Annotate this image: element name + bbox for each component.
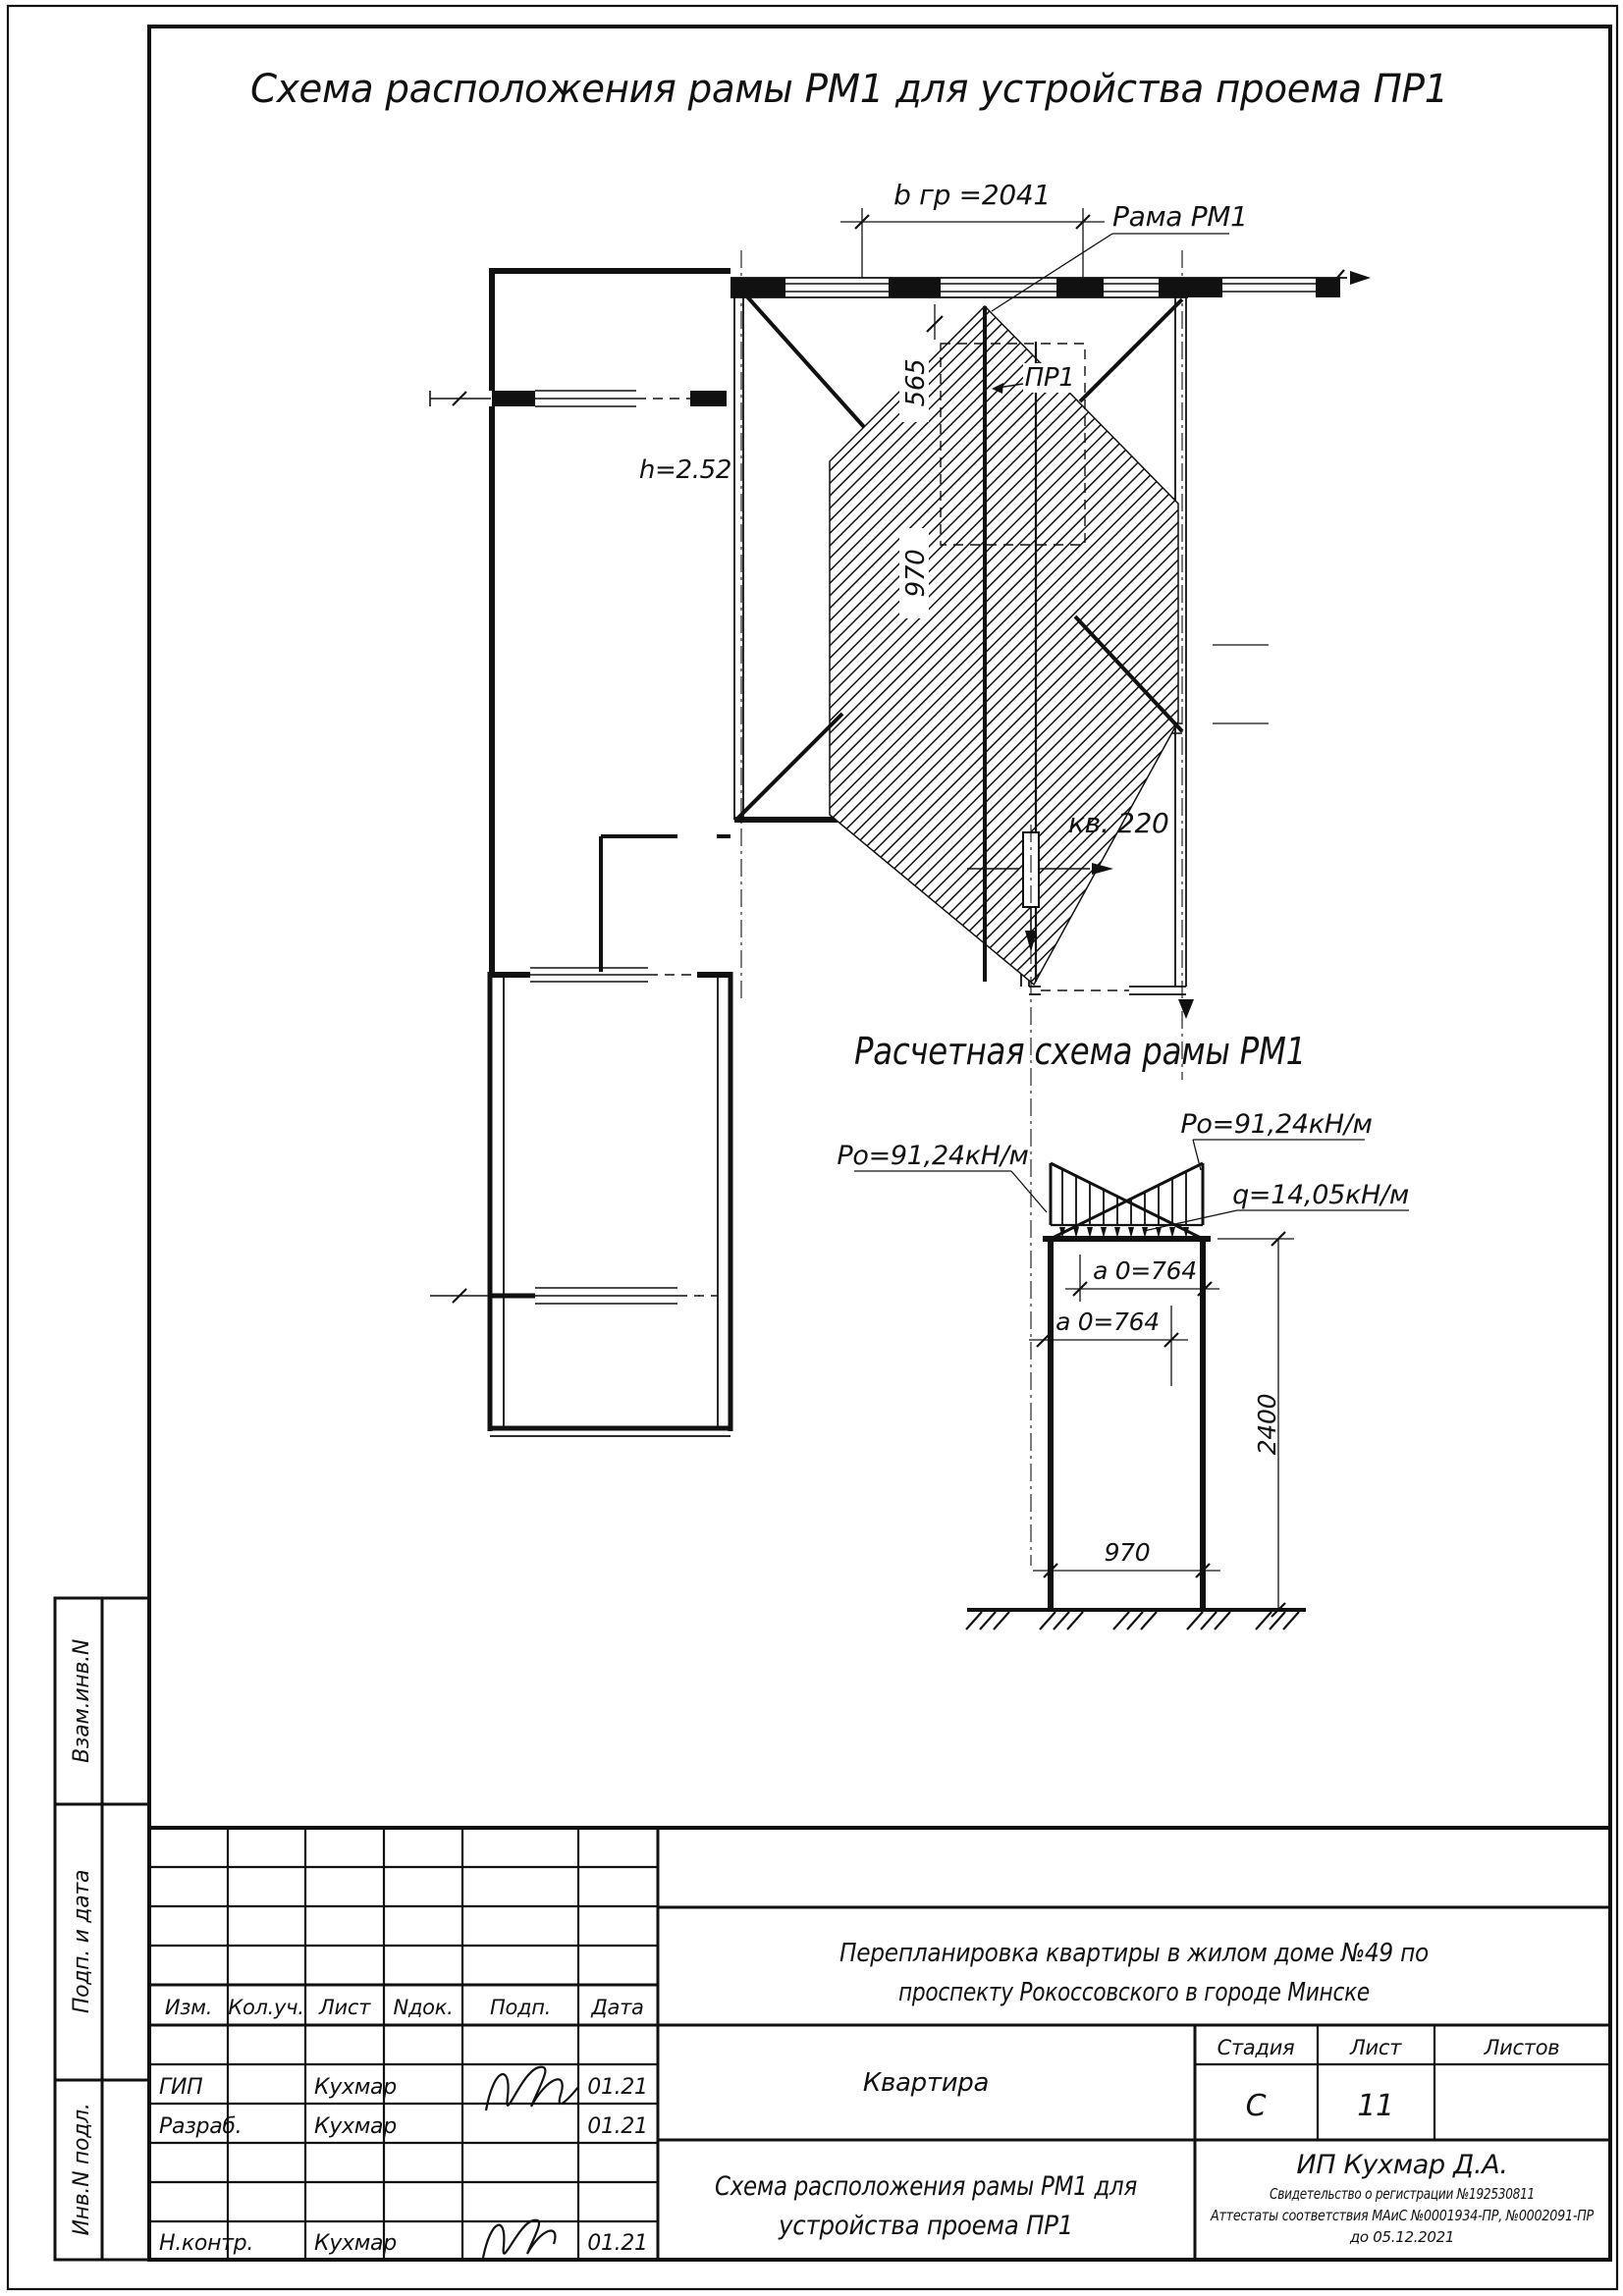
plan-left-block: h=2.52 — [430, 271, 731, 982]
floor-plan: Схема расположения рамы РМ1 для устройст… — [250, 67, 1448, 1566]
tb-role: Н.контр. — [159, 2231, 253, 2256]
load-labels: Ро=91,24кН/м Ро=91,24кН/м q=14,05кН/м — [837, 1109, 1409, 1231]
tb-staff-row-razrab: Разраб. Кухмар 01.21 — [159, 2114, 648, 2139]
calc-scheme: Расчетная схема рамы РМ1 — [837, 1030, 1409, 1629]
load-right-label: Ро=91,24кН/м — [1180, 1109, 1372, 1140]
load-q-label: q=14,05кН/м — [1232, 1180, 1409, 1210]
axis-arrow-kv-right — [1092, 863, 1113, 875]
opening-label: ПР1 — [1025, 363, 1075, 393]
title-block: Изм. Кол.уч. Лист Nдок. Подп. Дата ГИП К… — [149, 1828, 1610, 2260]
side-label-podp-data: Подп. и дата — [70, 1870, 94, 2013]
dim-2400: 2400 — [1253, 1394, 1281, 1455]
drawing-sheet-svg: Взам.инв.N Подп. и дата Инв.N подл. Схем… — [0, 0, 1623, 2296]
tb-date: 01.21 — [587, 2231, 647, 2256]
tb-object: Квартира — [863, 2068, 989, 2098]
hatched-opening-zone: ПР1 565 970 — [736, 285, 1182, 985]
tb-staff-row-nkontr: Н.контр. Кухмар 01.21 — [159, 2231, 648, 2256]
load-left-label: Ро=91,24кН/м — [837, 1141, 1028, 1171]
tb-name: Кухмар — [314, 2231, 397, 2256]
side-label-inv: Инв.N подл. — [70, 2103, 94, 2235]
tb-header-data: Дата — [590, 1996, 643, 2019]
tb-header-izm: Изм. — [165, 1996, 212, 2019]
drawing-page: Взам.инв.N Подп. и дата Инв.N подл. Схем… — [0, 0, 1623, 2296]
side-label-vzam: Взам.инв.N — [70, 1639, 94, 1763]
tb-staff-row-gip: ГИП Кухмар 01.21 — [159, 2075, 648, 2100]
tb-name: Кухмар — [314, 2114, 397, 2139]
side-stamp: Взам.инв.N Подп. и дата Инв.N подл. — [55, 1598, 149, 2260]
dim-a0-bottom: а 0=764 — [1055, 1308, 1160, 1336]
tb-doc-line2: устройства проема ПР1 — [778, 2211, 1073, 2241]
tb-company: ИП Кухмар Д.А. — [1296, 2150, 1507, 2180]
plan-dimension-bgr: b гр =2041 — [840, 179, 1105, 278]
dim-970: 970 — [1105, 1538, 1151, 1567]
axis-arrow-right — [1350, 271, 1371, 285]
tb-stage-value: С — [1246, 2089, 1267, 2123]
calc-dimensions: а 0=764 а 0=764 970 2400 — [1029, 1232, 1294, 1617]
plan-dim-970: 970 — [901, 550, 931, 598]
plan-dim-565: 565 — [901, 359, 931, 407]
tb-role: ГИП — [159, 2075, 202, 2100]
tb-sheet-value: 11 — [1357, 2089, 1394, 2123]
tb-date: 01.21 — [587, 2075, 647, 2100]
plan-long-room — [430, 972, 730, 1436]
dim-a0-top: а 0=764 — [1093, 1256, 1197, 1285]
tb-role: Разраб. — [159, 2114, 242, 2139]
tb-doc-line1: Схема расположения рамы РМ1 для — [715, 2171, 1137, 2202]
apartment-label: кв. 220 — [1068, 807, 1169, 839]
tb-sheets-label: Листов — [1484, 2036, 1560, 2059]
tb-cert2: Аттестаты соответствия МАиС №0001934-ПР,… — [1210, 2207, 1595, 2224]
calc-title: Расчетная схема рамы РМ1 — [854, 1030, 1306, 1073]
tb-project-line1: Перепланировка квартиры в жилом доме №49… — [839, 1939, 1429, 1968]
tb-header-podp: Подп. — [490, 1996, 551, 2019]
dim-bgr-label: b гр =2041 — [893, 179, 1051, 211]
tb-cert1: Свидетельство о регистрации №192530811 — [1270, 2185, 1535, 2203]
plan-title: Схема расположения рамы РМ1 для устройст… — [250, 67, 1448, 112]
ground-line — [966, 1610, 1306, 1629]
load-diagram — [1051, 1163, 1203, 1239]
tb-header-ndok: Nдок. — [394, 1996, 454, 2019]
tb-header-list: Лист — [318, 1996, 371, 2019]
tb-stage-label: Стадия — [1217, 2036, 1295, 2059]
signature-mark — [483, 2220, 555, 2258]
frame-leader-label: Рама РМ1 — [1112, 200, 1248, 233]
load-spread-hatch — [830, 306, 1178, 985]
room-height-label: h=2.52 — [639, 455, 731, 485]
tb-name: Кухмар — [314, 2075, 397, 2100]
tb-sheet-label: Лист — [1349, 2036, 1402, 2059]
tb-date: 01.21 — [587, 2114, 647, 2139]
tb-cert3: до 05.12.2021 — [1349, 2228, 1454, 2246]
tb-header-koluch: Кол.уч. — [228, 1996, 303, 2019]
axis-arrow-corner — [1178, 999, 1194, 1019]
tb-project-line2: проспекту Рокоссовского в городе Минске — [898, 1978, 1370, 2007]
